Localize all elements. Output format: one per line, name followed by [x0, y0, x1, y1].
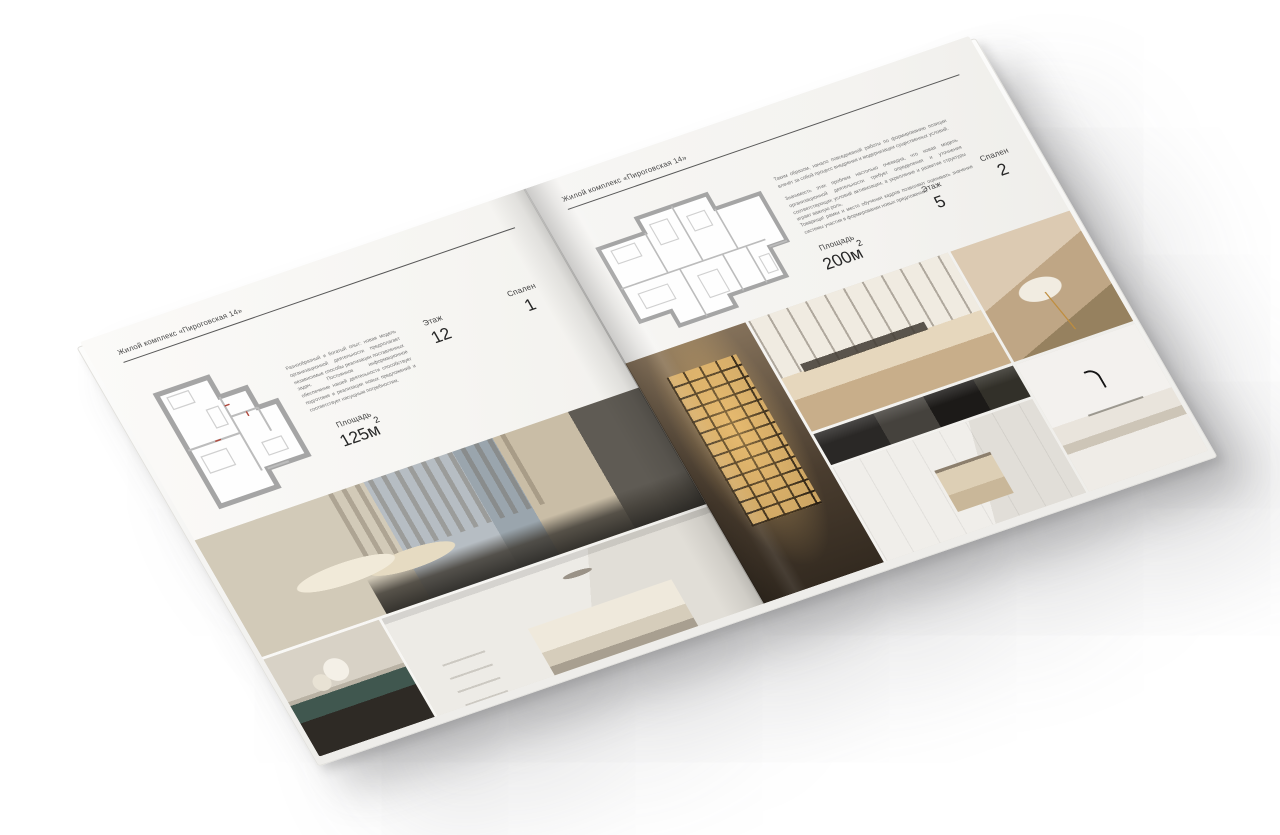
- open-brochure: Жилой комплекс «Пироговская 14» Разнообр…: [80, 36, 1208, 757]
- stat-bedrooms: Спален 1: [496, 278, 558, 322]
- stat-floor: Этаж 12: [409, 309, 467, 352]
- description-text: Разнообразный и богатый опыт: новая моде…: [285, 329, 422, 415]
- stat-area: Площадь 125м2: [323, 406, 396, 454]
- page-header: Жилой комплекс «Пироговская 14»: [116, 306, 244, 357]
- header-rule: [123, 227, 515, 363]
- stat-bedrooms: Спален 2: [969, 143, 1031, 187]
- white-surface: Жилой комплекс «Пироговская 14» Разнообр…: [0, 0, 1280, 835]
